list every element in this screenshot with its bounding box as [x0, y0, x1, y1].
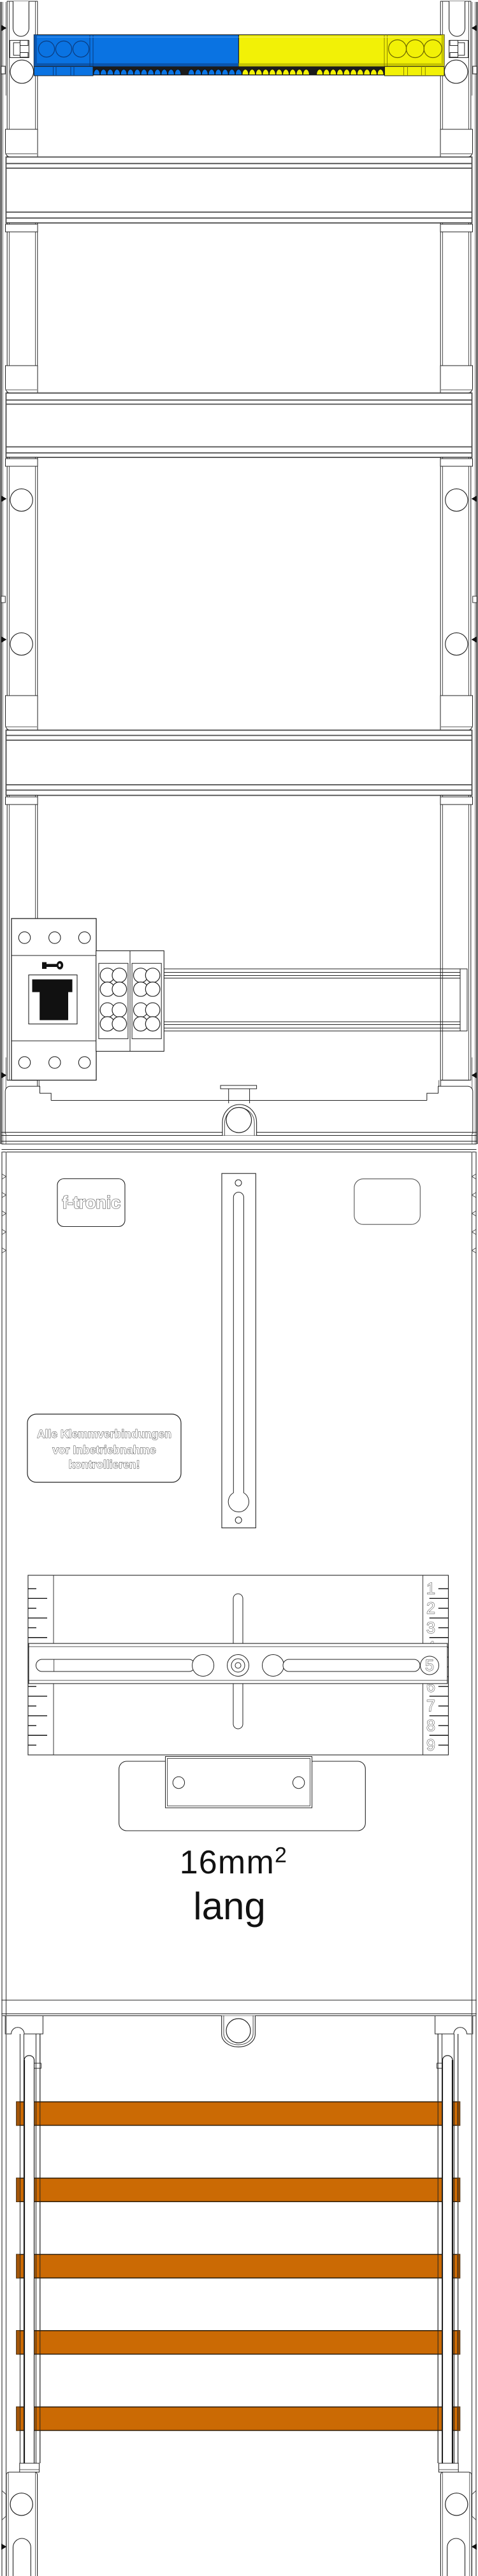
- svg-text:3: 3: [426, 1619, 435, 1637]
- svg-text:Alle Klemmverbindungen: Alle Klemmverbindungen: [37, 1428, 171, 1440]
- svg-text:kontrollieren!: kontrollieren!: [69, 1458, 140, 1471]
- svg-text:1: 1: [426, 1580, 435, 1598]
- svg-text:9: 9: [426, 1736, 435, 1754]
- svg-text:2: 2: [426, 1599, 435, 1617]
- svg-text:f-tronic: f-tronic: [62, 1192, 120, 1212]
- svg-text:lang: lang: [193, 1885, 265, 1928]
- svg-text:16mm2: 16mm2: [180, 1843, 287, 1882]
- svg-text:vor Inbetriebnahme: vor Inbetriebnahme: [52, 1443, 156, 1456]
- svg-text:5: 5: [425, 1657, 434, 1675]
- svg-text:8: 8: [426, 1717, 435, 1735]
- svg-text:7: 7: [426, 1698, 435, 1715]
